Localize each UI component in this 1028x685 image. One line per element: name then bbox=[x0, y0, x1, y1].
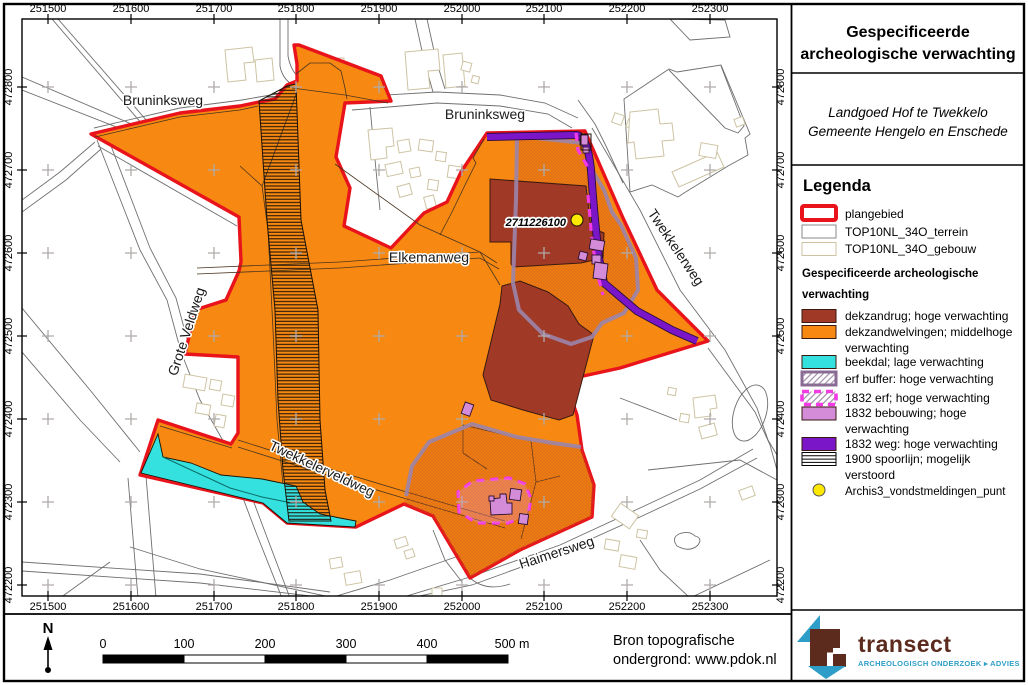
svg-text:500 m: 500 m bbox=[495, 637, 530, 651]
svg-text:251600: 251600 bbox=[113, 601, 150, 613]
svg-text:Gemeente Hengelo en Enschede: Gemeente Hengelo en Enschede bbox=[808, 124, 1008, 139]
svg-text:1832 bebouwing; hoge: 1832 bebouwing; hoge bbox=[845, 406, 967, 420]
svg-text:472700: 472700 bbox=[775, 152, 787, 189]
svg-text:472500: 472500 bbox=[775, 318, 787, 355]
svg-text:251900: 251900 bbox=[361, 601, 398, 613]
svg-text:252100: 252100 bbox=[526, 601, 563, 613]
svg-text:Landgoed Hof te Twekkelo: Landgoed Hof te Twekkelo bbox=[828, 105, 988, 120]
svg-text:200: 200 bbox=[255, 637, 276, 651]
svg-text:ondergrond: www.pdok.nl: ondergrond: www.pdok.nl bbox=[613, 652, 777, 668]
svg-text:Gespecificeerde: Gespecificeerde bbox=[846, 24, 970, 41]
svg-text:0: 0 bbox=[100, 637, 107, 651]
svg-text:verwachting: verwachting bbox=[845, 341, 909, 355]
svg-text:erf buffer: hoge verwachting: erf buffer: hoge verwachting bbox=[845, 372, 994, 386]
svg-text:dekzandrug; hoge verwachting: dekzandrug; hoge verwachting bbox=[845, 309, 1008, 323]
svg-text:transect: transect bbox=[858, 631, 951, 657]
svg-text:dekzandwelvingen; middelhoge: dekzandwelvingen; middelhoge bbox=[845, 325, 1013, 339]
svg-text:2711226100: 2711226100 bbox=[505, 217, 567, 229]
svg-text:beekdal; lage verwachting: beekdal; lage verwachting bbox=[845, 355, 984, 369]
svg-text:TOP10NL_34O_terrein: TOP10NL_34O_terrein bbox=[845, 225, 968, 239]
svg-text:Bron topografische: Bron topografische bbox=[613, 633, 735, 649]
svg-text:472400: 472400 bbox=[775, 401, 787, 438]
svg-text:1900 spoorlijn; mogelijk: 1900 spoorlijn; mogelijk bbox=[845, 452, 971, 466]
svg-text:1832 erf; hoge verwachting: 1832 erf; hoge verwachting bbox=[845, 391, 990, 405]
svg-text:verwachting: verwachting bbox=[802, 289, 869, 301]
svg-text:100: 100 bbox=[174, 637, 195, 651]
svg-text:N: N bbox=[43, 620, 54, 637]
svg-text:400: 400 bbox=[417, 637, 438, 651]
svg-text:251500: 251500 bbox=[30, 601, 67, 613]
svg-text:Archis3_vondstmeldingen_punt: Archis3_vondstmeldingen_punt bbox=[845, 486, 1006, 498]
svg-text:verwachting: verwachting bbox=[845, 422, 909, 436]
svg-text:472300: 472300 bbox=[775, 484, 787, 521]
svg-text:Gespecificeerde archeologische: Gespecificeerde archeologische bbox=[802, 268, 978, 280]
svg-text:ARCHEOLOGISCH ONDERZOEK ▸ ADVI: ARCHEOLOGISCH ONDERZOEK ▸ ADVIES bbox=[858, 659, 1020, 668]
svg-text:Elkemanweg: Elkemanweg bbox=[389, 249, 469, 265]
svg-text:Bruninksweg: Bruninksweg bbox=[445, 106, 525, 122]
svg-text:251700: 251700 bbox=[196, 601, 233, 613]
svg-text:251800: 251800 bbox=[278, 601, 315, 613]
svg-text:472200: 472200 bbox=[775, 567, 787, 604]
svg-text:plangebied: plangebied bbox=[845, 207, 904, 221]
svg-text:252300: 252300 bbox=[692, 601, 729, 613]
svg-text:1832 weg: hoge verwachting: 1832 weg: hoge verwachting bbox=[845, 437, 998, 451]
svg-text:300: 300 bbox=[336, 637, 357, 651]
svg-text:archeologische verwachting: archeologische verwachting bbox=[800, 46, 1015, 63]
svg-text:Bruninksweg: Bruninksweg bbox=[123, 92, 203, 108]
svg-text:Legenda: Legenda bbox=[803, 177, 872, 195]
svg-text:252200: 252200 bbox=[609, 601, 646, 613]
svg-text:472600: 472600 bbox=[775, 235, 787, 272]
svg-text:verstoord: verstoord bbox=[845, 468, 895, 482]
svg-text:252000: 252000 bbox=[444, 601, 481, 613]
svg-text:472800: 472800 bbox=[775, 69, 787, 106]
svg-text:TOP10NL_34O_gebouw: TOP10NL_34O_gebouw bbox=[845, 242, 977, 256]
